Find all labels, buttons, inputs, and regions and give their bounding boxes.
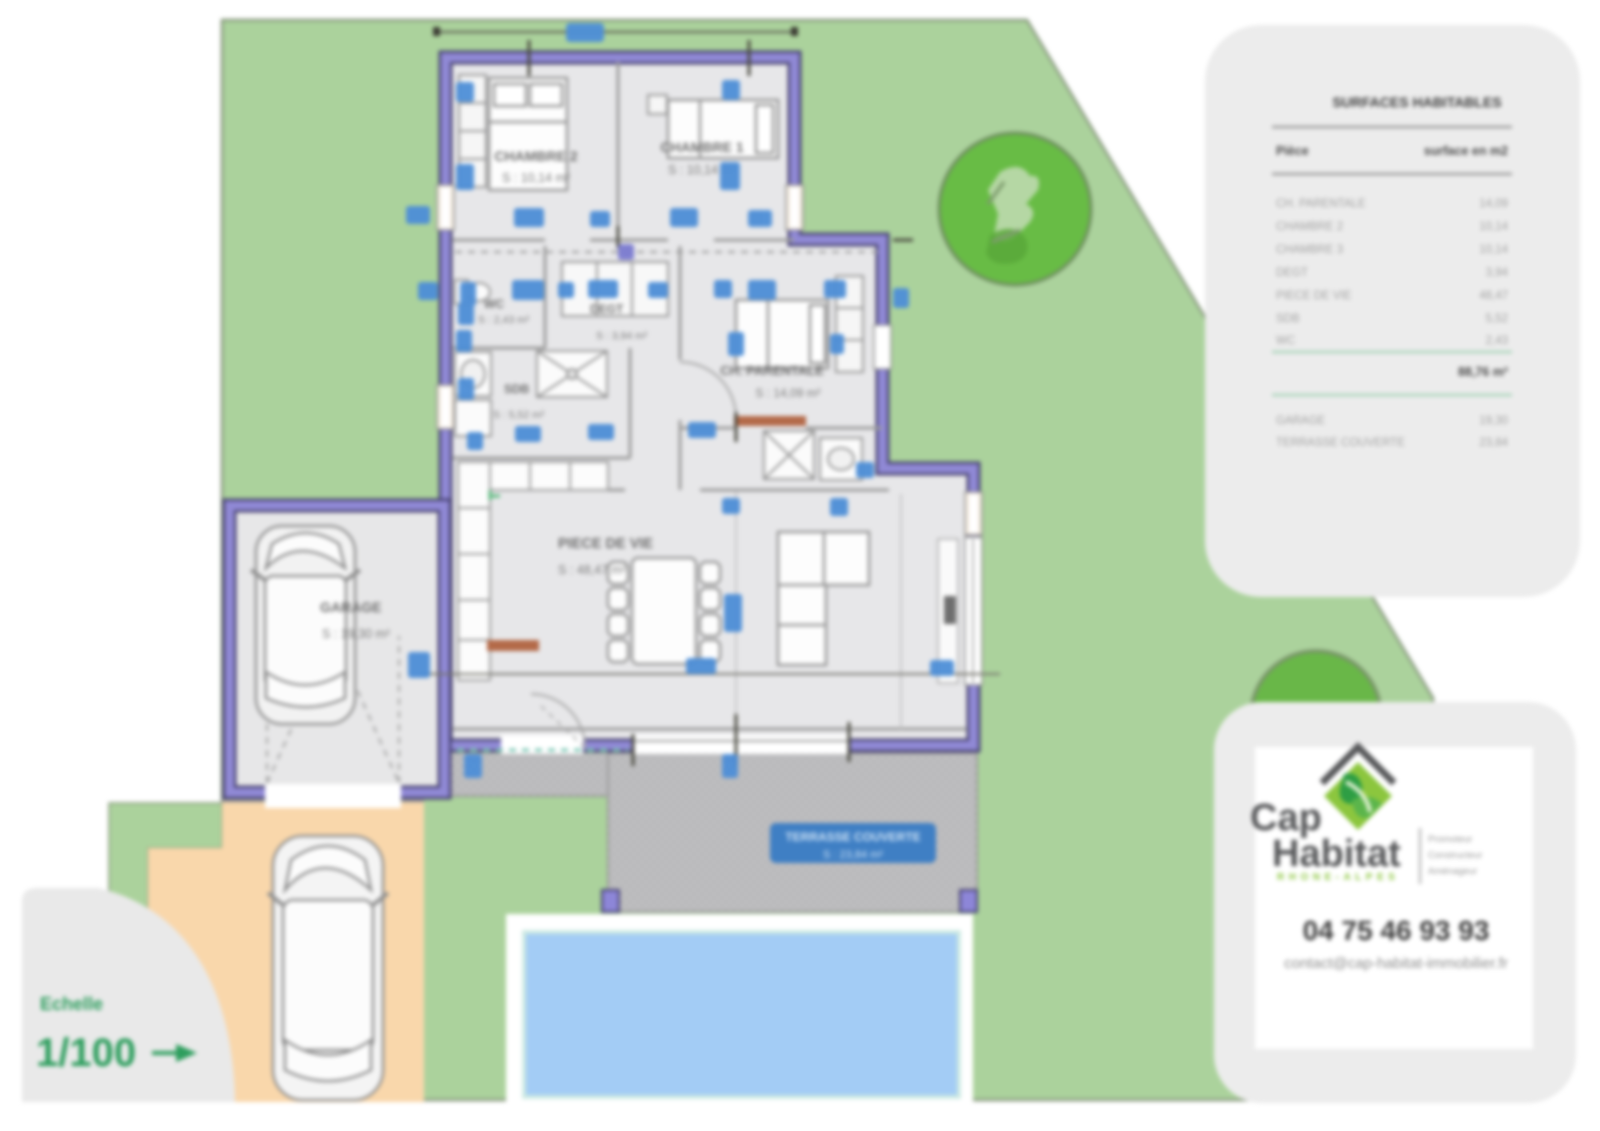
svg-text:S : 3,94 m²: S : 3,94 m²	[596, 330, 648, 342]
svg-text:CHAMBRE 1: CHAMBRE 1	[660, 139, 743, 155]
svg-text:SDB: SDB	[1276, 313, 1300, 325]
svg-text:CHAMBRE 2: CHAMBRE 2	[494, 148, 577, 164]
svg-text:DEGT: DEGT	[1276, 267, 1308, 279]
svg-text:WC: WC	[484, 297, 504, 311]
svg-text:SURFACES HABITABLES: SURFACES HABITABLES	[1332, 94, 1501, 110]
svg-text:3,94: 3,94	[1486, 267, 1509, 279]
svg-text:Aménageur: Aménageur	[1428, 866, 1477, 877]
svg-text:88,76 m²: 88,76 m²	[1458, 365, 1508, 379]
svg-text:Promoteur: Promoteur	[1428, 834, 1472, 845]
svg-text:S : 23,84 m²: S : 23,84 m²	[823, 849, 883, 861]
svg-text:Habitat: Habitat	[1272, 833, 1401, 875]
svg-text:contact@cap-habitat-immobilier: contact@cap-habitat-immobilier.fr	[1284, 955, 1508, 972]
svg-text:2,43: 2,43	[1486, 335, 1508, 347]
svg-text:Echelle: Echelle	[40, 994, 103, 1014]
svg-text:23,84: 23,84	[1479, 437, 1508, 449]
svg-text:PIECE DE VIE: PIECE DE VIE	[1276, 290, 1352, 302]
svg-text:GARAGE: GARAGE	[1276, 415, 1326, 427]
svg-text:WC: WC	[1276, 335, 1295, 347]
svg-text:19,30: 19,30	[1479, 415, 1508, 427]
svg-text:S : 48,47 m²: S : 48,47 m²	[558, 563, 626, 577]
svg-text:TERRASSE COUVERTE: TERRASSE COUVERTE	[1276, 437, 1405, 449]
svg-text:CH. PARENTALE: CH. PARENTALE	[1276, 198, 1366, 210]
svg-text:S : 2,43 m²: S : 2,43 m²	[478, 314, 530, 326]
svg-text:48,47: 48,47	[1479, 290, 1508, 302]
svg-text:GARAGE: GARAGE	[320, 599, 381, 615]
svg-text:DEGT: DEGT	[590, 302, 624, 316]
svg-text:Pièce: Pièce	[1276, 144, 1309, 158]
svg-text:S : 5,52 m²: S : 5,52 m²	[493, 409, 545, 421]
svg-text:S : 10,14 m²: S : 10,14 m²	[502, 171, 570, 185]
svg-text:TERRASSE COUVERTE: TERRASSE COUVERTE	[785, 830, 920, 844]
svg-text:SDB: SDB	[504, 382, 530, 396]
svg-text:surface en m2: surface en m2	[1424, 144, 1508, 158]
svg-text:RHONE-ALPES: RHONE-ALPES	[1277, 872, 1399, 883]
svg-text:04 75 46 93 93: 04 75 46 93 93	[1303, 915, 1490, 946]
svg-text:14,09: 14,09	[1479, 198, 1508, 210]
svg-text:S : 14,09 m²: S : 14,09 m²	[755, 386, 820, 400]
svg-text:PIECE DE VIE: PIECE DE VIE	[558, 536, 653, 552]
svg-text:1/100: 1/100	[36, 1031, 136, 1075]
svg-text:10,14: 10,14	[1479, 244, 1508, 256]
svg-text:CH. PARENTALE: CH. PARENTALE	[720, 363, 824, 378]
svg-text:10,14: 10,14	[1479, 221, 1508, 233]
svg-text:CHAMBRE 2: CHAMBRE 2	[1276, 221, 1343, 233]
svg-text:CHAMBRE 3: CHAMBRE 3	[1276, 244, 1343, 256]
svg-text:5,52: 5,52	[1486, 313, 1508, 325]
svg-text:Constructeur: Constructeur	[1428, 850, 1482, 861]
svg-text:S : 19,30 m²: S : 19,30 m²	[322, 627, 390, 641]
